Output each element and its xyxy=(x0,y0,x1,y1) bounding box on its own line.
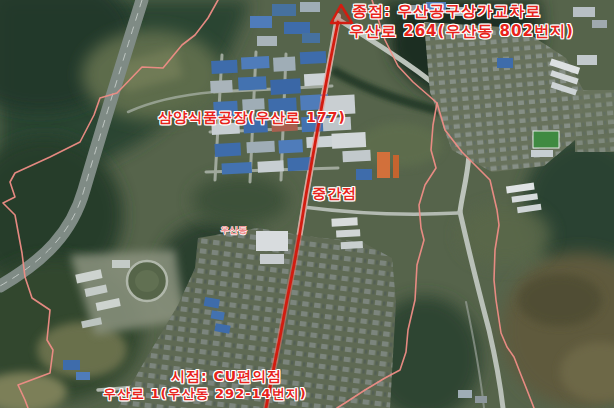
satellite-map: 종점: 우산공구상가교차로 우산로 264(우산동 802번지) 삼양식품공장(… xyxy=(0,0,614,408)
orange-roof-building xyxy=(377,152,390,178)
destination-label-line1: 종점: 우산공구상가교차로 xyxy=(352,3,541,20)
sports-field xyxy=(533,131,559,148)
start-label-line2: 우산로 1(우산동 292-14번지) xyxy=(103,387,307,401)
district-label: 우산동 xyxy=(220,226,247,236)
destination-label-line2: 우산로 264(우산동 802번지) xyxy=(349,23,574,40)
factory-label: 삼양식품공장(우산로 177) xyxy=(158,110,346,125)
start-label-line1: 시점: CU편의점 xyxy=(171,369,282,384)
midpoint-label: 중간점 xyxy=(312,186,357,201)
satellite-map-canvas xyxy=(0,0,614,408)
